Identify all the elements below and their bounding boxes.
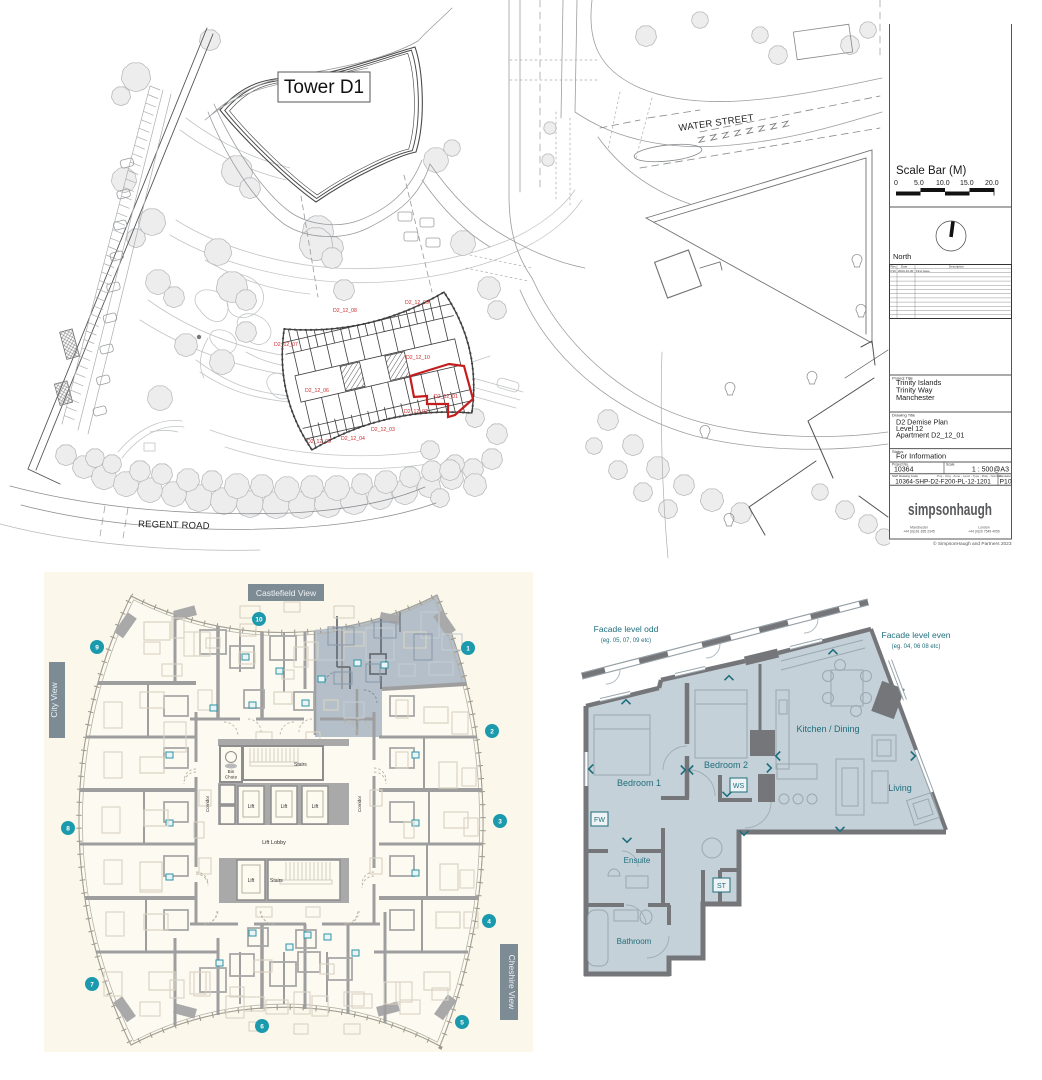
- svg-text:Cheshire View: Cheshire View: [507, 955, 517, 1011]
- svg-text:Lift Lobby: Lift Lobby: [262, 840, 286, 846]
- svg-text:Description: Description: [949, 265, 964, 269]
- svg-text:4: 4: [487, 918, 491, 925]
- svg-text:Lift: Lift: [312, 804, 319, 810]
- svg-text:Bedroom 2: Bedroom 2: [704, 760, 748, 770]
- svg-text:D2_12_01: D2_12_01: [434, 394, 458, 400]
- svg-text:Facade level odd: Facade level odd: [594, 624, 659, 634]
- svg-text:Lift: Lift: [248, 804, 255, 810]
- svg-text:Corridor: Corridor: [357, 795, 362, 812]
- svg-text:REGENT ROAD: REGENT ROAD: [138, 519, 210, 532]
- svg-text:City View: City View: [49, 682, 59, 718]
- svg-text:Bathroom: Bathroom: [617, 937, 652, 946]
- svg-text:Living: Living: [888, 783, 912, 793]
- svg-text:15.0: 15.0: [960, 180, 974, 187]
- svg-text:Facade level even: Facade level even: [882, 630, 951, 640]
- svg-text:Stairs: Stairs: [294, 762, 307, 768]
- svg-text:Manchester: Manchester: [896, 393, 935, 402]
- svg-text:P10: P10: [891, 269, 897, 273]
- svg-text:Tower D1: Tower D1: [284, 77, 364, 98]
- svg-text:For Information: For Information: [896, 452, 946, 461]
- svg-text:(eg. 05, 07, 09 etc): (eg. 05, 07, 09 etc): [601, 638, 651, 644]
- svg-text:D2_12_05: D2_12_05: [307, 439, 331, 445]
- svg-text:9: 9: [95, 644, 99, 651]
- svg-text:D2_12_02: D2_12_02: [404, 409, 428, 415]
- svg-text:7: 7: [90, 981, 94, 988]
- svg-text:Kitchen / Dining: Kitchen / Dining: [796, 724, 859, 734]
- svg-text:5.0: 5.0: [914, 180, 924, 187]
- svg-text:+44 (0)20 7549 4050: +44 (0)20 7549 4050: [968, 530, 1000, 534]
- svg-text:3: 3: [498, 818, 502, 825]
- svg-text:1: 1: [466, 645, 470, 652]
- svg-text:8: 8: [66, 825, 70, 832]
- svg-text:6: 6: [260, 1023, 264, 1030]
- svg-text:Chute: Chute: [225, 775, 238, 780]
- svg-text:Bedroom 1: Bedroom 1: [617, 778, 661, 788]
- svg-text:simpsonhaugh: simpsonhaugh: [908, 501, 992, 519]
- svg-text:20.0: 20.0: [985, 180, 999, 187]
- svg-text:10: 10: [255, 616, 263, 623]
- svg-text:Ensuite: Ensuite: [624, 856, 651, 865]
- svg-text:0: 0: [894, 180, 898, 187]
- svg-text:Castlefield View: Castlefield View: [256, 588, 317, 598]
- svg-text:Bin: Bin: [228, 769, 235, 774]
- svg-text:Revision: Revision: [1000, 474, 1012, 478]
- svg-text:Scale Bar (M): Scale Bar (M): [896, 165, 966, 177]
- svg-text:D2_12_04: D2_12_04: [341, 436, 365, 442]
- svg-text:Scale: Scale: [946, 463, 955, 467]
- svg-text:FW: FW: [594, 817, 605, 824]
- svg-text:5: 5: [460, 1019, 464, 1026]
- svg-text:D2_12_08: D2_12_08: [333, 308, 357, 314]
- svg-text:D2_12_10: D2_12_10: [406, 355, 430, 361]
- svg-text:D2_12_07: D2_12_07: [274, 342, 298, 348]
- svg-text:D2_12_09: D2_12_09: [405, 300, 429, 306]
- svg-text:© SimpsonHaugh and Partners 2: © SimpsonHaugh and Partners 2023: [933, 540, 1012, 547]
- svg-text:Lift: Lift: [248, 878, 255, 884]
- svg-text:Apartment D2_12_01: Apartment D2_12_01: [896, 430, 964, 439]
- svg-text:First Issue: First Issue: [916, 269, 930, 273]
- svg-text:(eg. 04, 06 08 etc): (eg. 04, 06 08 etc): [892, 644, 941, 650]
- svg-text:Corridor: Corridor: [205, 795, 210, 812]
- svg-text:1 : 500@A3: 1 : 500@A3: [972, 466, 1009, 473]
- svg-text:WS: WS: [733, 783, 745, 790]
- svg-text:10.0: 10.0: [936, 180, 950, 187]
- svg-text:D2_12_06: D2_12_06: [305, 388, 329, 394]
- svg-text:Lift: Lift: [281, 804, 288, 810]
- svg-text:D2_12_03: D2_12_03: [371, 427, 395, 433]
- svg-text:10364: 10364: [894, 466, 914, 473]
- svg-text:North: North: [893, 252, 911, 261]
- svg-text:Stairs: Stairs: [270, 878, 283, 884]
- svg-text:+44 (0)161 835 2345: +44 (0)161 835 2345: [903, 530, 935, 534]
- svg-text:WATER STREET: WATER STREET: [678, 113, 755, 134]
- svg-text:2: 2: [490, 728, 494, 735]
- svg-text:10364-SHP-D2-F200-PL-12-1201: 10364-SHP-D2-F200-PL-12-1201: [895, 478, 991, 485]
- svg-text:SHP Drawing Code: SHP Drawing Code: [892, 474, 918, 478]
- svg-text:Proj - Orig - Zone - Level - T: Proj - Orig - Zone - Level - Type - Role…: [937, 474, 1001, 478]
- svg-text:ST: ST: [717, 883, 727, 890]
- svg-text:2023-10-30: 2023-10-30: [898, 269, 914, 273]
- svg-text:P10: P10: [1000, 478, 1012, 485]
